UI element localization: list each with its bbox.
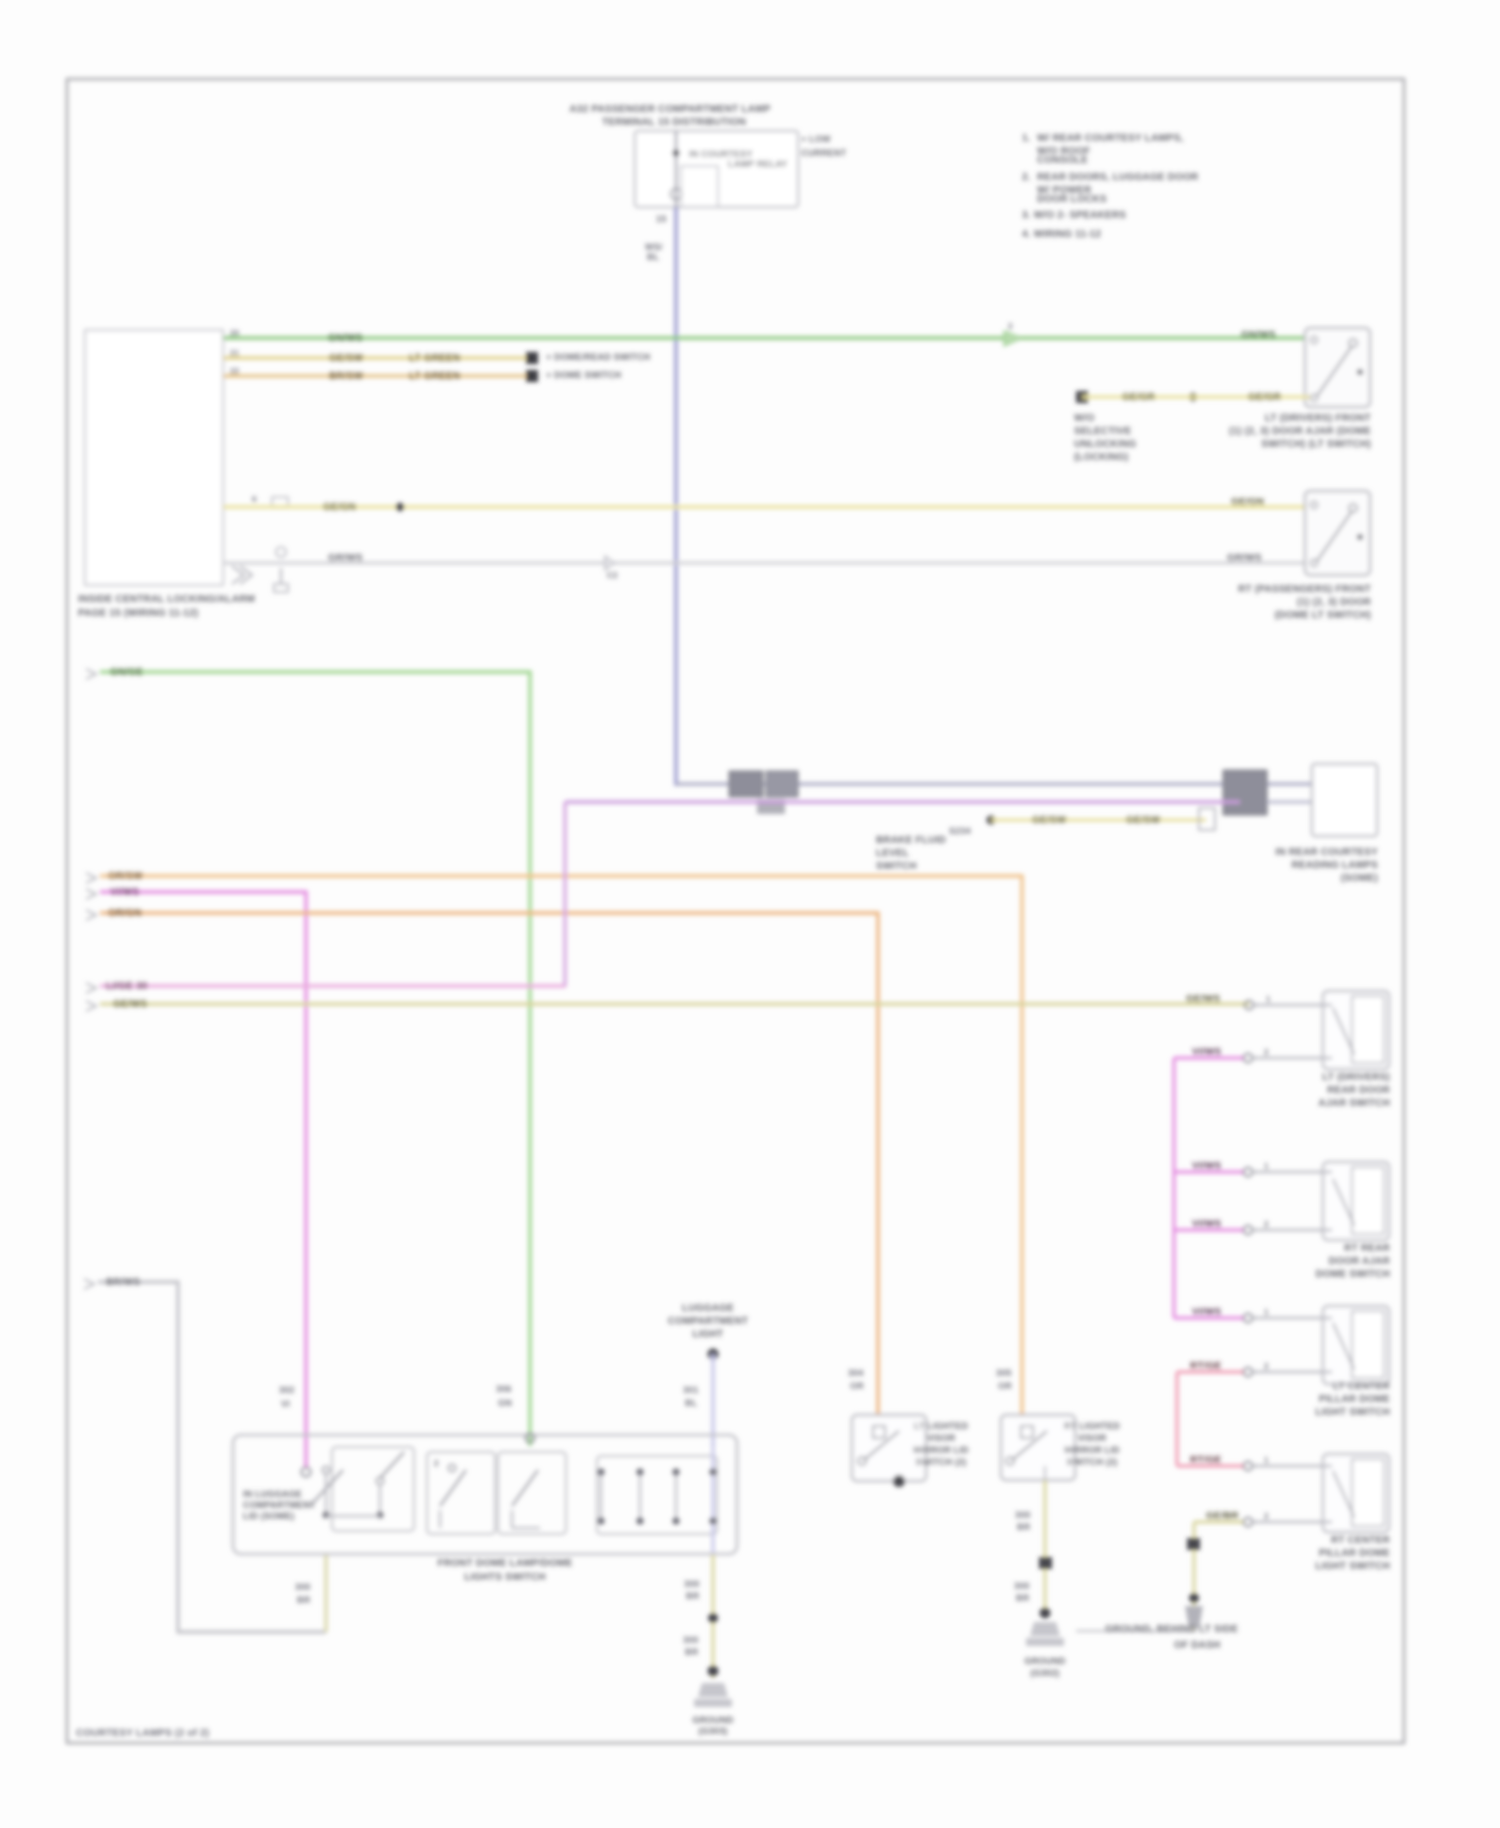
svg-text:GE/SW: GE/SW xyxy=(1032,815,1067,826)
svg-text:BL: BL xyxy=(647,252,660,262)
svg-text:TERMINAL 15 DISTRIBUTION: TERMINAL 15 DISTRIBUTION xyxy=(602,117,746,128)
svg-text:CONSOLE: CONSOLE xyxy=(1037,155,1088,166)
svg-text:GE/WS: GE/WS xyxy=(1186,994,1220,1005)
svg-text:2: 2 xyxy=(1264,1048,1269,1057)
svg-text:A32 PASSENGER COMPARTMENT LAMP: A32 PASSENGER COMPARTMENT LAMP xyxy=(569,104,770,115)
svg-text:(LOCKING): (LOCKING) xyxy=(1074,452,1129,463)
svg-text:(1) (2, 3) DOOR: (1) (2, 3) DOOR xyxy=(1297,597,1372,608)
svg-text:GE/GN: GE/GN xyxy=(1231,497,1264,508)
svg-text:GROUND: GROUND xyxy=(692,1715,733,1725)
svg-text:300: 300 xyxy=(684,1579,700,1589)
svg-text:MIRROR LID: MIRROR LID xyxy=(913,1445,969,1455)
svg-text:SWITCH) (LT SWITCH): SWITCH) (LT SWITCH) xyxy=(1261,439,1371,450)
svg-text:OR/GN: OR/GN xyxy=(108,908,142,919)
svg-text:VISOR: VISOR xyxy=(926,1433,955,1443)
svg-text:WS/: WS/ xyxy=(645,242,663,252)
svg-text:IN LUGGAGE: IN LUGGAGE xyxy=(243,1489,302,1499)
svg-text:CURRENT: CURRENT xyxy=(801,148,847,158)
svg-text:VI: VI xyxy=(281,1399,290,1409)
svg-text:RT LIGHTED: RT LIGHTED xyxy=(1064,1421,1120,1431)
svg-text:OR: OR xyxy=(998,1381,1012,1391)
svg-text:1: 1 xyxy=(1264,1456,1269,1465)
svg-text:LAMP RELAY: LAMP RELAY xyxy=(728,159,788,169)
svg-text:COMPARTMENT: COMPARTMENT xyxy=(668,1316,748,1327)
svg-text:1: 1 xyxy=(1266,995,1271,1004)
svg-text:UNLOCKING: UNLOCKING xyxy=(1074,439,1136,450)
svg-text:+ DOME/READ SWITCH: + DOME/READ SWITCH xyxy=(546,352,650,362)
svg-text:LT CENTER: LT CENTER xyxy=(1333,1381,1391,1392)
svg-text:INSIDE CENTRAL LOCKING/ALARM: INSIDE CENTRAL LOCKING/ALARM xyxy=(78,594,255,605)
svg-text:SWITCH (2): SWITCH (2) xyxy=(1067,1457,1118,1467)
svg-text:302: 302 xyxy=(279,1385,295,1395)
svg-text:IN REAR COURTESY: IN REAR COURTESY xyxy=(1275,847,1378,858)
svg-text:IN COURTESY: IN COURTESY xyxy=(689,149,753,159)
svg-text:300: 300 xyxy=(295,1582,311,1592)
svg-text:VISOR: VISOR xyxy=(1077,1433,1106,1443)
svg-text:3. W/O 2- SPEAKERS: 3. W/O 2- SPEAKERS xyxy=(1022,210,1126,221)
svg-text:LEVEL: LEVEL xyxy=(876,848,909,859)
svg-text:GE/SW: GE/SW xyxy=(1126,815,1161,826)
svg-text:LT LIGHTED: LT LIGHTED xyxy=(914,1421,969,1431)
svg-text:LIGHT SWITCH: LIGHT SWITCH xyxy=(1315,1561,1390,1572)
svg-text:GE/GN: GE/GN xyxy=(323,502,356,513)
svg-text:RT (PASSENGERS) FRONT: RT (PASSENGERS) FRONT xyxy=(1238,584,1371,595)
svg-text:COMPARTMENT: COMPARTMENT xyxy=(243,1500,316,1510)
svg-text:2.: 2. xyxy=(1022,172,1031,183)
svg-text:300: 300 xyxy=(1015,1510,1031,1520)
svg-text:GE/BR: GE/BR xyxy=(1206,1511,1239,1522)
svg-text:GE/SW: GE/SW xyxy=(329,353,364,364)
svg-text:+ LOW: + LOW xyxy=(801,134,831,144)
svg-text:(DOME LT SWITCH): (DOME LT SWITCH) xyxy=(1275,610,1371,621)
svg-text:BR: BR xyxy=(1016,1593,1030,1603)
svg-text:GN/WS: GN/WS xyxy=(328,333,363,344)
svg-text:1: 1 xyxy=(1264,1308,1269,1317)
svg-text:MIRROR LID: MIRROR LID xyxy=(1064,1445,1120,1455)
svg-text:PILLAR DOME: PILLAR DOME xyxy=(1319,1394,1390,1405)
svg-text:(SOME): (SOME) xyxy=(1341,873,1378,884)
svg-text:305: 305 xyxy=(996,1368,1012,1378)
svg-text:FRONT DOME LAMP/DOME: FRONT DOME LAMP/DOME xyxy=(437,1558,572,1569)
svg-text:4. WIRING 11-12: 4. WIRING 11-12 xyxy=(1022,229,1101,240)
svg-text:PAGE 15 (WIRING 11-12): PAGE 15 (WIRING 11-12) xyxy=(78,608,198,619)
svg-text:BR: BR xyxy=(1017,1522,1031,1532)
svg-text:300: 300 xyxy=(1014,1581,1030,1591)
svg-text:W/O: W/O xyxy=(1074,413,1095,424)
svg-text:LIGHT: LIGHT xyxy=(693,1329,724,1340)
svg-text:BR: BR xyxy=(686,1591,700,1601)
svg-text:OR: OR xyxy=(850,1381,864,1391)
svg-text:306: 306 xyxy=(496,1384,512,1394)
svg-text:BR: BR xyxy=(297,1595,311,1605)
svg-text:(1) (2, 3) DOOR AJAR (DOME: (1) (2, 3) DOOR AJAR (DOME xyxy=(1229,426,1371,437)
svg-text:PILLAR DOME: PILLAR DOME xyxy=(1319,1548,1390,1559)
svg-text:2: 2 xyxy=(1264,1512,1269,1521)
svg-text:6: 6 xyxy=(252,495,257,504)
svg-text:2: 2 xyxy=(1008,322,1013,331)
svg-text:+ DOME SWITCH: + DOME SWITCH xyxy=(546,370,621,380)
svg-text:GE/GR: GE/GR xyxy=(1122,392,1156,403)
svg-text:VI/WS: VI/WS xyxy=(1192,1307,1221,1318)
svg-text:GR/WS: GR/WS xyxy=(1227,553,1262,564)
svg-text:OF DASH: OF DASH xyxy=(1174,1640,1220,1651)
svg-text:GN/WS: GN/WS xyxy=(1241,330,1276,341)
svg-text:1.: 1. xyxy=(1022,133,1031,144)
svg-text:DOME SWITCH: DOME SWITCH xyxy=(1316,1269,1390,1280)
svg-text:DOOR LOCKS: DOOR LOCKS xyxy=(1037,194,1107,205)
svg-text:SWITCH: SWITCH xyxy=(876,861,917,872)
svg-text:BR: BR xyxy=(685,1647,699,1657)
svg-text:LUGGAGE: LUGGAGE xyxy=(682,1303,734,1314)
svg-text:BR/WS: BR/WS xyxy=(106,1277,140,1288)
svg-text:GN: GN xyxy=(498,1398,512,1408)
svg-text:1: 1 xyxy=(1264,1162,1269,1171)
svg-text:GROUND: GROUND xyxy=(1024,1656,1065,1666)
svg-text:RT CENTER: RT CENTER xyxy=(1331,1535,1391,1546)
svg-text:OR/SW: OR/SW xyxy=(108,871,143,882)
svg-text:W/ REAR COURTESY LAMPS,: W/ REAR COURTESY LAMPS, xyxy=(1037,133,1184,144)
svg-text:304: 304 xyxy=(848,1368,864,1378)
svg-text:2: 2 xyxy=(1264,1362,1269,1371)
svg-text:GE/GR: GE/GR xyxy=(1248,392,1282,403)
svg-text:LIGHTS SWITCH: LIGHTS SWITCH xyxy=(464,1572,545,1583)
svg-text:COURTESY LAMPS (2 of 2): COURTESY LAMPS (2 of 2) xyxy=(76,1728,209,1739)
svg-text:RT REAR: RT REAR xyxy=(1344,1243,1390,1254)
svg-text:LIGHT SWITCH: LIGHT SWITCH xyxy=(1315,1407,1390,1418)
svg-text:2: 2 xyxy=(434,1459,439,1468)
svg-text:AJAR SWITCH: AJAR SWITCH xyxy=(1318,1098,1390,1109)
svg-text:LI/GE 30: LI/GE 30 xyxy=(106,981,148,992)
svg-text:SELECTIVE: SELECTIVE xyxy=(1074,426,1131,437)
svg-text:RT/GE: RT/GE xyxy=(1190,1455,1222,1466)
svg-text:REAR DOORS, LUGGAGE DOOR: REAR DOORS, LUGGAGE DOOR xyxy=(1037,172,1199,183)
svg-text:LT (DRIVERS): LT (DRIVERS) xyxy=(1322,1072,1390,1083)
svg-text:(G303): (G303) xyxy=(698,1726,727,1736)
svg-text:BR/SW: BR/SW xyxy=(329,371,364,382)
svg-text:VI/WS: VI/WS xyxy=(1192,1219,1221,1230)
svg-text:REAR DOOR: REAR DOOR xyxy=(1327,1085,1390,1096)
svg-text:S234: S234 xyxy=(949,826,971,836)
svg-text:READING LAMPS: READING LAMPS xyxy=(1292,860,1379,871)
svg-text:C2: C2 xyxy=(607,571,618,580)
svg-text:BRAKE FLUID: BRAKE FLUID xyxy=(876,835,946,846)
svg-text:GR/WS: GR/WS xyxy=(328,553,363,564)
svg-text:15: 15 xyxy=(656,214,666,224)
svg-text:SWITCH (2): SWITCH (2) xyxy=(916,1457,967,1467)
svg-text:RT/GE: RT/GE xyxy=(1190,1361,1222,1372)
svg-text:GROUND, BEHIND LT SIDE: GROUND, BEHIND LT SIDE xyxy=(1105,1624,1238,1635)
svg-text:2: 2 xyxy=(1264,1220,1269,1229)
svg-text:VI/WS: VI/WS xyxy=(110,887,139,898)
svg-text:VI/WS: VI/WS xyxy=(1192,1047,1221,1058)
svg-text:DOOR AJAR: DOOR AJAR xyxy=(1329,1256,1391,1267)
svg-text:(G302): (G302) xyxy=(1030,1668,1059,1678)
svg-text:VI/WS: VI/WS xyxy=(1192,1161,1221,1172)
svg-text:LT (DRIVERS) FRONT: LT (DRIVERS) FRONT xyxy=(1265,413,1371,424)
svg-text:GN/GE: GN/GE xyxy=(110,667,143,678)
svg-text:LT GREEN: LT GREEN xyxy=(409,353,460,364)
svg-text:300: 300 xyxy=(683,1635,699,1645)
svg-text:GE/WS: GE/WS xyxy=(113,999,147,1010)
svg-text:LT GREEN: LT GREEN xyxy=(409,371,460,382)
svg-text:LID (SOME): LID (SOME) xyxy=(243,1511,295,1521)
svg-text:301: 301 xyxy=(683,1385,699,1395)
svg-text:BL: BL xyxy=(685,1398,698,1408)
